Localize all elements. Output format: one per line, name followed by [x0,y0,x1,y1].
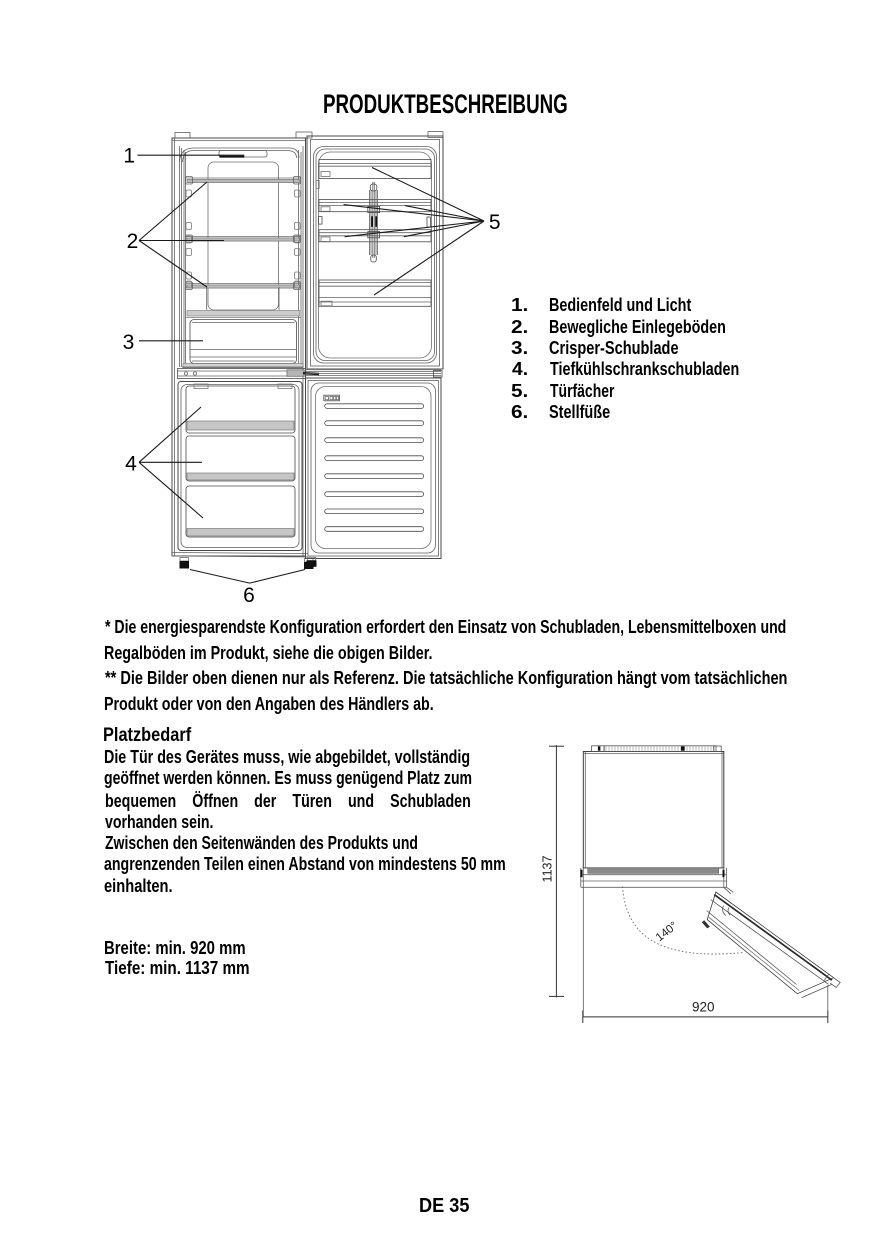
svg-text:1: 1 [123,144,135,167]
svg-text:1137: 1137 [540,856,554,883]
svg-text:5: 5 [489,211,501,234]
svg-text:2: 2 [127,230,139,253]
svg-text:920: 920 [692,1000,715,1015]
svg-text:3: 3 [123,331,135,354]
svg-text:140°: 140° [654,920,680,944]
svg-text:6: 6 [243,584,255,607]
svg-text:4: 4 [125,453,137,476]
